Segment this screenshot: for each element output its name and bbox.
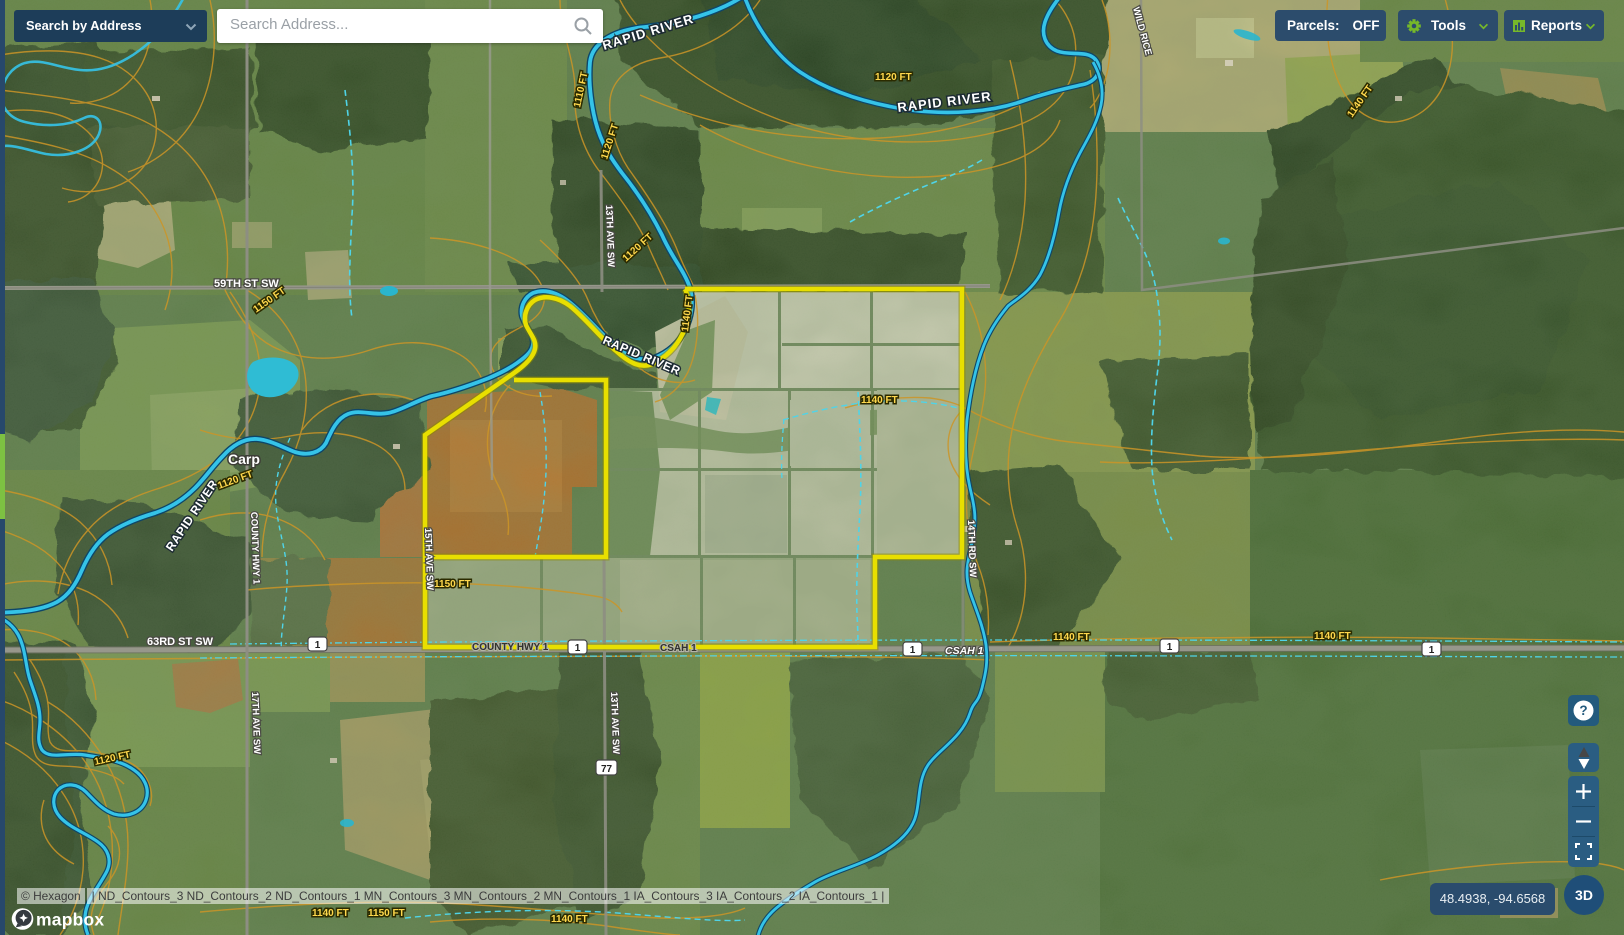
svg-text:1150 FT: 1150 FT <box>434 579 471 590</box>
svg-text:13TH AVE SW: 13TH AVE SW <box>603 205 616 268</box>
svg-text:COUNTY HWY 1: COUNTY HWY 1 <box>472 642 549 653</box>
svg-text:14TH RD SW: 14TH RD SW <box>965 520 978 578</box>
svg-text:1: 1 <box>575 643 581 654</box>
svg-text:Carp: Carp <box>228 451 260 467</box>
svg-text:1120 FT: 1120 FT <box>875 72 912 83</box>
svg-text:59TH ST SW: 59TH ST SW <box>214 278 279 290</box>
svg-text:17TH AVE SW: 17TH AVE SW <box>249 692 262 755</box>
svg-text:CSAH 1: CSAH 1 <box>945 645 984 657</box>
svg-text:1150 FT: 1150 FT <box>368 908 405 919</box>
svg-text:1140 FT: 1140 FT <box>551 914 588 925</box>
svg-text:63RD ST SW: 63RD ST SW <box>147 636 214 648</box>
svg-text:1: 1 <box>1167 642 1173 653</box>
svg-text:1140 FT: 1140 FT <box>1053 632 1090 643</box>
svg-text:CSAH 1: CSAH 1 <box>660 643 697 654</box>
svg-text:1: 1 <box>910 645 916 656</box>
svg-text:15TH AVE SW: 15TH AVE SW <box>422 528 435 591</box>
svg-text:1140 FT: 1140 FT <box>312 908 349 919</box>
svg-text:77: 77 <box>601 764 613 775</box>
svg-text:1: 1 <box>1429 645 1435 656</box>
svg-text:13TH AVE SW: 13TH AVE SW <box>608 692 621 755</box>
svg-text:1140 FT: 1140 FT <box>1314 631 1351 642</box>
svg-text:mapbox: mapbox <box>36 910 104 930</box>
svg-text:1: 1 <box>315 640 321 651</box>
svg-text:1140 FT: 1140 FT <box>861 395 898 406</box>
svg-text:?: ? <box>1579 703 1587 718</box>
